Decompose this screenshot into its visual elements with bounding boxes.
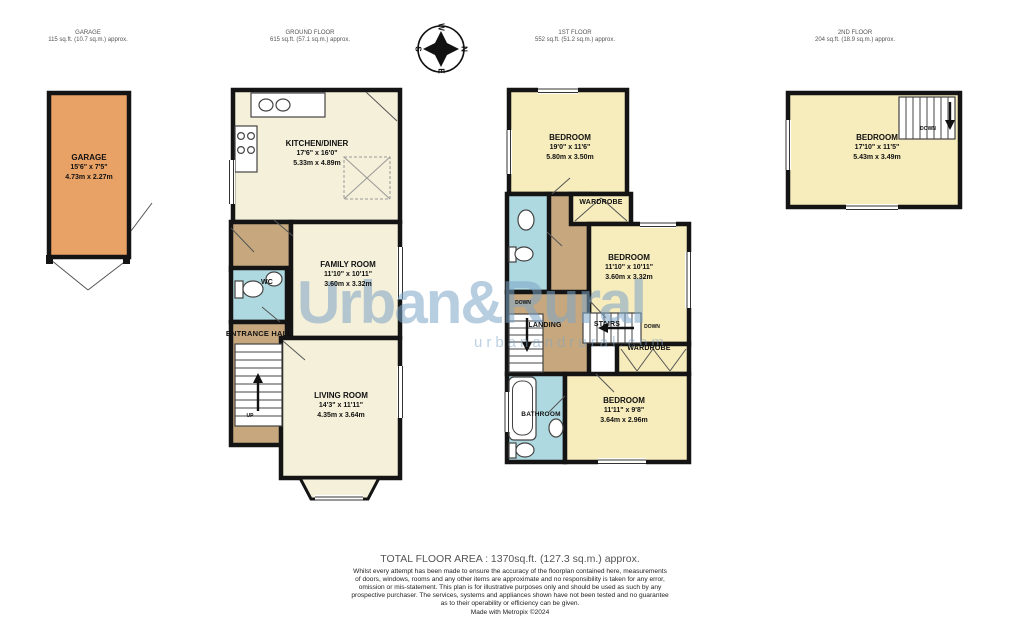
bathroom-label: BATHROOM	[521, 411, 560, 418]
compass-north: N	[460, 46, 469, 52]
compass-rose: W N E S	[414, 23, 469, 74]
stairs-label: STAIRS	[594, 321, 620, 328]
garage-header-title: GARAGE	[48, 30, 128, 37]
disclaimer-line: as to their operability or efficiency ca…	[0, 600, 1020, 608]
bathroom-basin	[549, 419, 563, 437]
kitchen-sink-bowl	[259, 99, 273, 111]
second-floor-header-title: 2ND FLOOR	[815, 30, 895, 37]
first-floor-header: 1ST FLOOR 552 sq.ft. (51.2 sq.m.) approx…	[535, 30, 615, 44]
ground-stairs	[235, 344, 282, 426]
wall-stub	[123, 255, 130, 264]
garage-door-swing	[88, 260, 127, 290]
hob-ring	[238, 133, 245, 140]
wc-label: WC	[261, 279, 273, 286]
garage-room-label: GARAGE 15'6" x 7'5" 4.73m x 2.27m	[65, 153, 112, 183]
landing-label: LANDING	[528, 322, 561, 329]
landing-down-label: DOWN	[515, 300, 531, 306]
first-floor-header-title: 1ST FLOOR	[535, 30, 615, 37]
second-floor-down-label: DOWN	[920, 126, 936, 132]
disclaimer-line: Whilst every attempt has been made to en…	[0, 568, 1020, 576]
ensuite-basin	[518, 210, 534, 230]
bedroom3-label: BEDROOM 11'11" x 9'8" 3.64m x 2.96m	[600, 396, 647, 426]
garage-plan	[46, 93, 152, 290]
compass-star	[423, 31, 459, 67]
wardrobe1-label: WARDROBE	[579, 199, 622, 206]
compass-west: W	[437, 23, 446, 31]
bathroom-toilet	[516, 443, 534, 457]
bedroom1-label: BEDROOM 19'0" x 11'6" 5.80m x 3.50m	[546, 133, 593, 163]
hob-ring	[238, 147, 245, 154]
ground-floor-header: GROUND FLOOR 615 sq.ft. (57.1 sq.m.) app…	[270, 30, 350, 44]
disclaimer-line: omission or mis-statement. This plan is …	[0, 584, 1020, 592]
first-floor-header-area: 552 sq.ft. (51.2 sq.m.) approx.	[535, 37, 615, 44]
stairs-down-label: DOWN	[644, 324, 660, 330]
bedroom2-label: BEDROOM 11'10" x 10'11" 3.60m x 3.32m	[605, 253, 653, 283]
disclaimer-line: prospective purchaser. The services, sys…	[0, 592, 1020, 600]
family-room-label: FAMILY ROOM 11'10" x 10'11" 3.60m x 3.32…	[320, 260, 376, 290]
kitchen-sink-bowl	[276, 99, 290, 111]
second-floor-header-area: 204 sq.ft. (18.9 sq.m.) approx.	[815, 37, 895, 44]
garage-side-door-swing	[131, 203, 152, 231]
ground-floor-header-title: GROUND FLOOR	[270, 30, 350, 37]
ground-floor-header-area: 615 sq.ft. (57.1 sq.m.) approx.	[270, 37, 350, 44]
up-label: UP	[247, 413, 254, 419]
compass-south: S	[414, 46, 423, 52]
wall-stub	[46, 255, 53, 264]
bedroom4-label: BEDROOM 17'10" x 11'5" 5.43m x 3.49m	[853, 133, 900, 163]
total-floor-area: TOTAL FLOOR AREA : 1370sq.ft. (127.3 sq.…	[0, 553, 1020, 565]
bathroom-cistern	[509, 443, 516, 458]
second-floor-header: 2ND FLOOR 204 sq.ft. (18.9 sq.m.) approx…	[815, 30, 895, 44]
living-room-label: LIVING ROOM 14'3" x 11'11" 4.35m x 3.64m	[314, 391, 368, 421]
wardrobe2-label: WARDROBE	[627, 345, 670, 352]
porch-shape	[231, 222, 291, 270]
hob-ring	[248, 133, 255, 140]
toilet-cistern	[235, 281, 243, 298]
garage-header-area: 115 sq.ft. (10.7 sq.m.) approx.	[48, 37, 128, 44]
garage-header: GARAGE 115 sq.ft. (10.7 sq.m.) approx.	[48, 30, 128, 44]
hob-ring	[248, 147, 255, 154]
footer: TOTAL FLOOR AREA : 1370sq.ft. (127.3 sq.…	[0, 553, 1020, 617]
second-floor-stairs	[899, 97, 955, 139]
kitchen-diner-label: KITCHEN/DINER 17'6" x 16'0" 5.33m x 4.89…	[286, 139, 349, 169]
disclaimer-line: of doors, windows, rooms and any other i…	[0, 576, 1020, 584]
garage-door-swing	[51, 260, 88, 290]
entrance-hall-label: ENTRANCE HALL	[226, 329, 292, 338]
metropix-credit: Made with Metropix ©2024	[0, 608, 1020, 617]
ensuite-toilet	[515, 247, 533, 261]
floorplan-canvas: W N E S Urban&Rural urbanandrural.com GA…	[0, 0, 1020, 619]
compass-east: E	[437, 68, 446, 74]
